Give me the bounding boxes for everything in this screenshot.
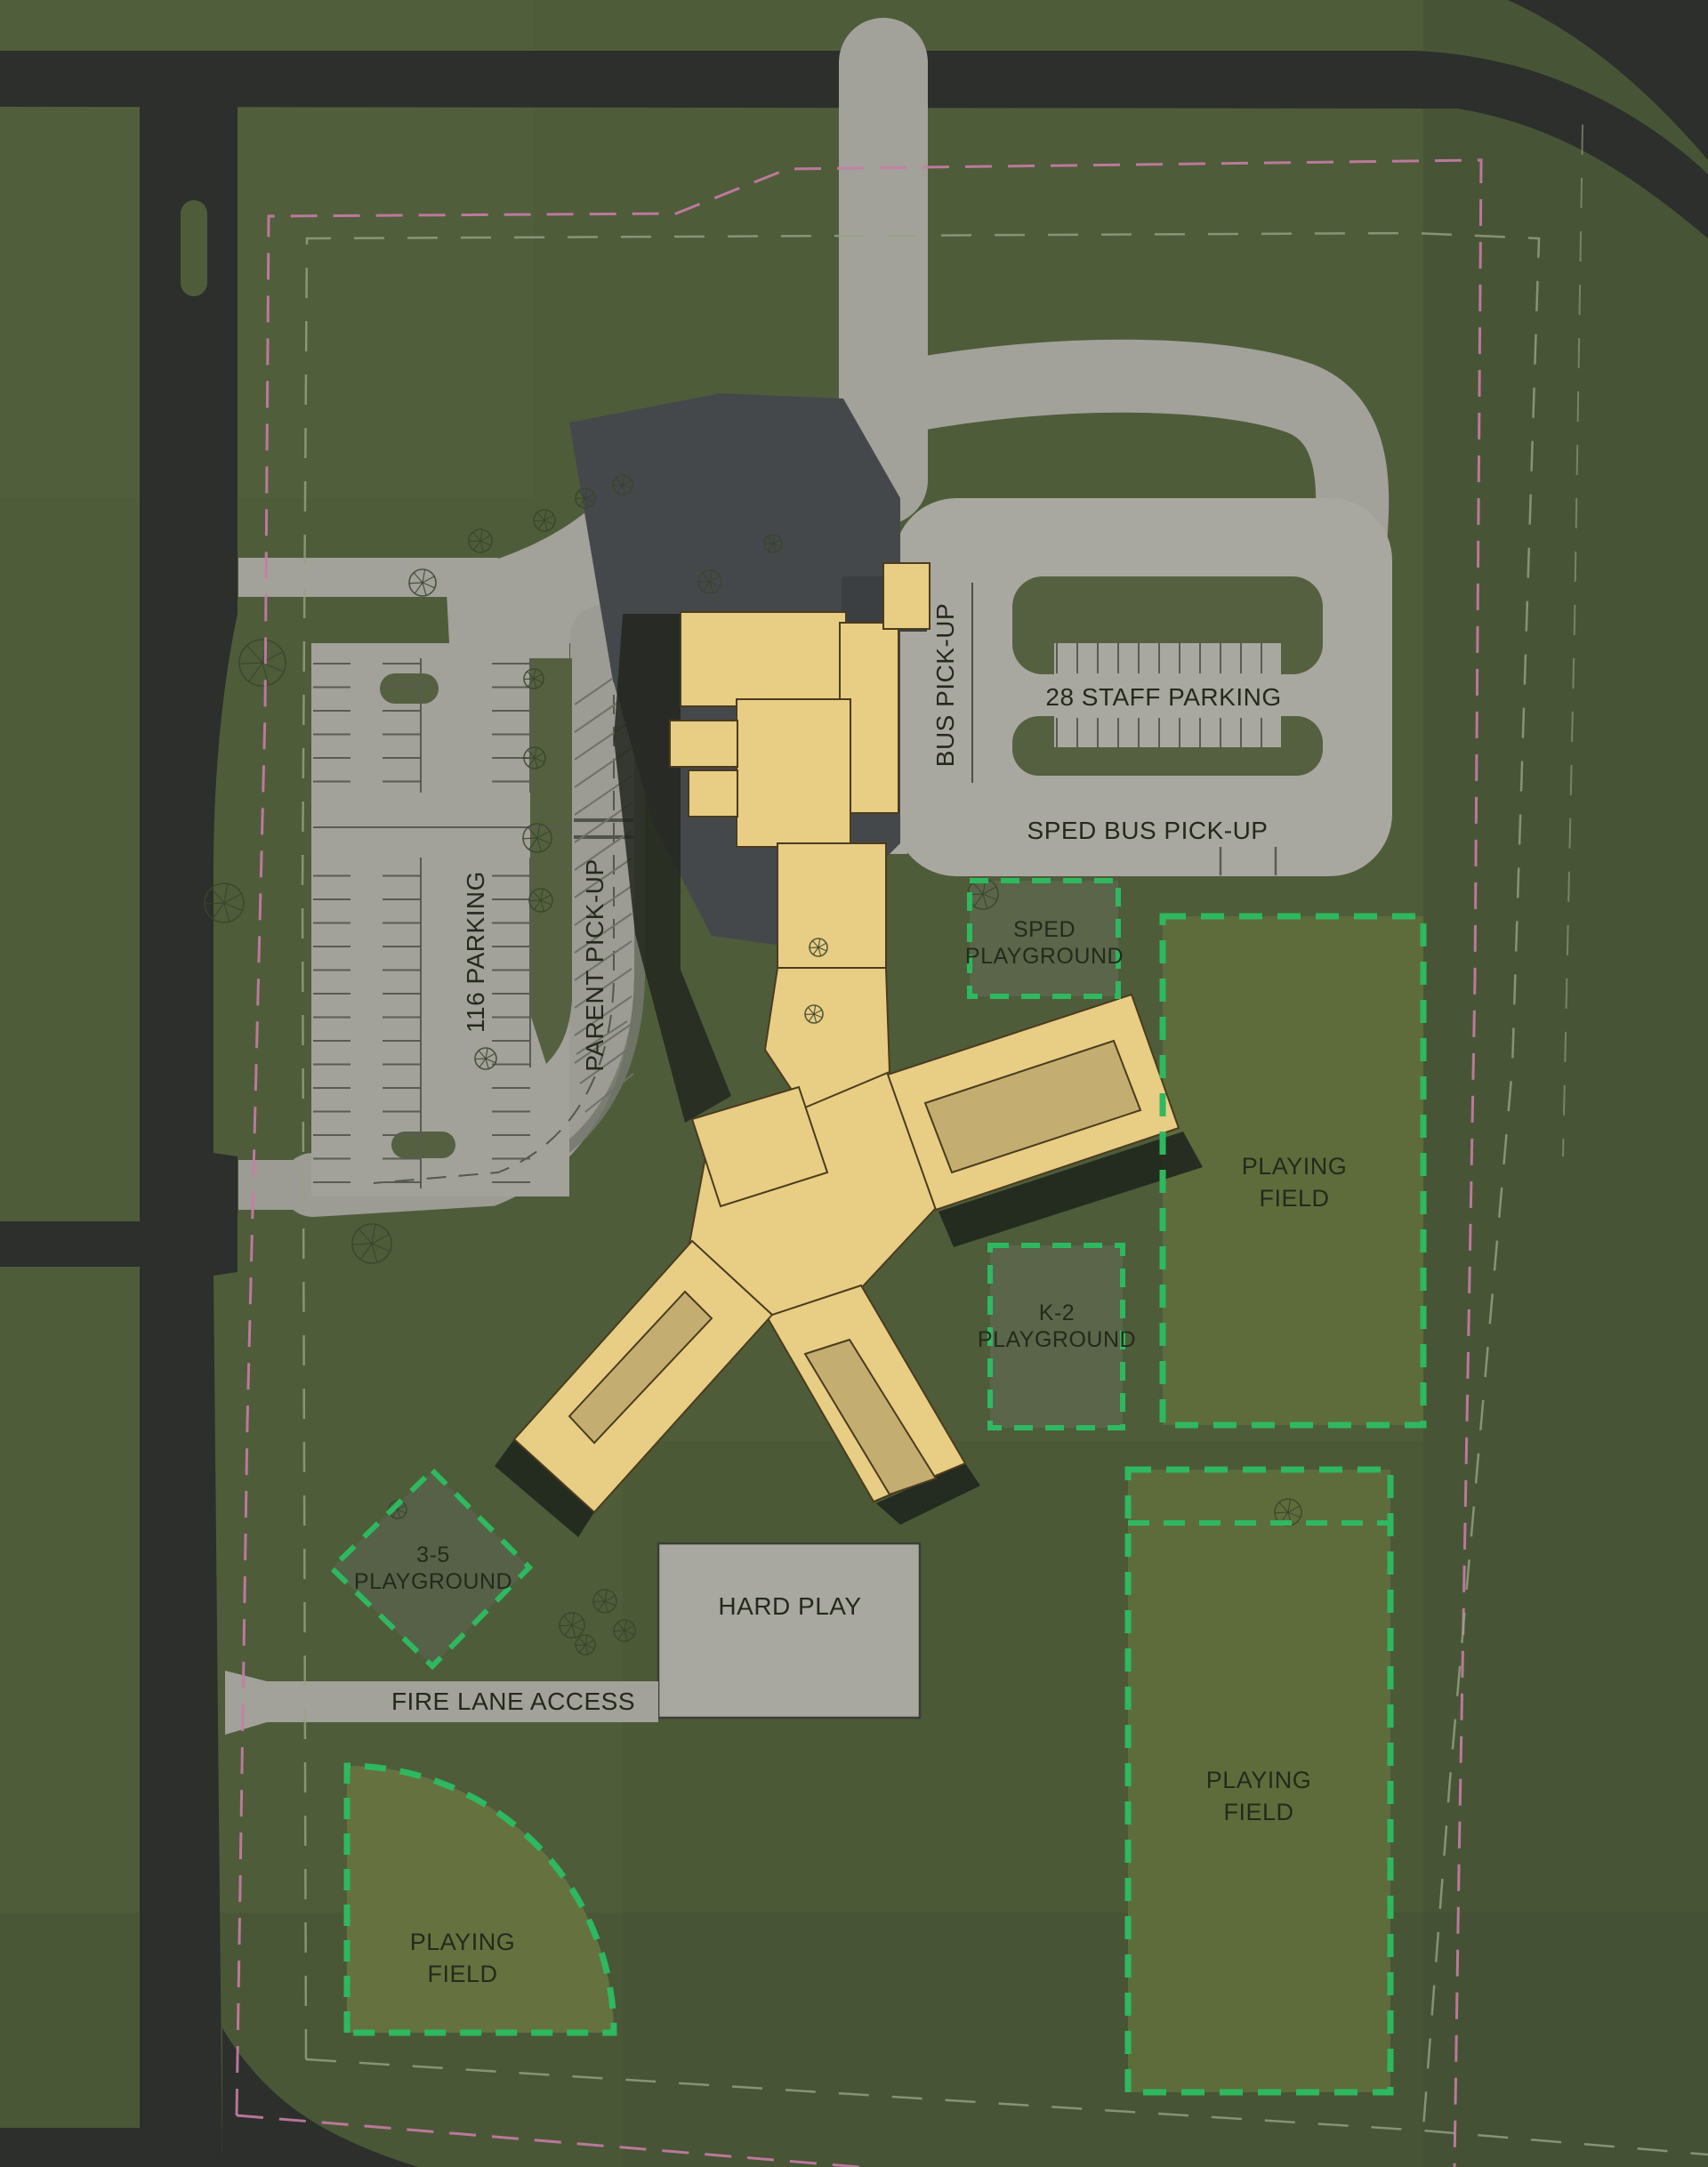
label-fire-lane: FIRE LANE ACCESS [391, 1688, 635, 1715]
svg-text:FIELD: FIELD [427, 1961, 497, 1987]
svg-text:FIELD: FIELD [1259, 1185, 1329, 1212]
west-road-branch [0, 1221, 142, 1267]
svg-text:K-2: K-2 [1039, 1301, 1075, 1325]
building-block-c [737, 699, 850, 847]
staff-stall-row-north [1054, 643, 1281, 674]
svg-text:3-5: 3-5 [416, 1543, 450, 1567]
building-block-ne [883, 563, 930, 629]
site-plan-canvas: 116 PARKING PARENT PICK-UP BUS PICK-UP 2… [0, 0, 1708, 2167]
label-116-parking: 116 PARKING [462, 871, 489, 1033]
svg-text:SPED: SPED [1013, 917, 1076, 942]
label-parent-pickup: PARENT PICK-UP [581, 858, 608, 1071]
svg-text:PLAYGROUND: PLAYGROUND [978, 1327, 1136, 1352]
lot-island-north [380, 673, 439, 704]
svg-text:PLAYING: PLAYING [410, 1929, 516, 1955]
label-bus-pickup: BUS PICK-UP [931, 603, 959, 767]
svg-text:PLAYGROUND: PLAYGROUND [965, 944, 1124, 969]
svg-text:PLAYING: PLAYING [1242, 1153, 1348, 1180]
label-hard-play: HARD PLAY [718, 1592, 861, 1620]
site-plan-drawing: 116 PARKING PARENT PICK-UP BUS PICK-UP 2… [0, 0, 1708, 2167]
grass-shade-east [1423, 0, 1708, 2167]
hard-play-area [658, 1543, 920, 1718]
label-sped-bus-pickup: SPED BUS PICK-UP [1027, 817, 1269, 844]
building-block-a [681, 612, 846, 706]
building-block-d [670, 721, 737, 767]
road-median-island [181, 200, 207, 296]
building-spine [777, 843, 886, 972]
svg-text:PLAYGROUND: PLAYGROUND [354, 1569, 512, 1594]
svg-text:PLAYING: PLAYING [1206, 1767, 1312, 1793]
south-road-stub [0, 2128, 142, 2167]
pickup-lane-island [530, 658, 572, 1064]
label-staff-parking: 28 STAFF PARKING [1045, 683, 1281, 711]
staff-stall-row-south [1054, 716, 1281, 747]
building-block-e [689, 770, 737, 817]
svg-text:FIELD: FIELD [1223, 1799, 1293, 1825]
